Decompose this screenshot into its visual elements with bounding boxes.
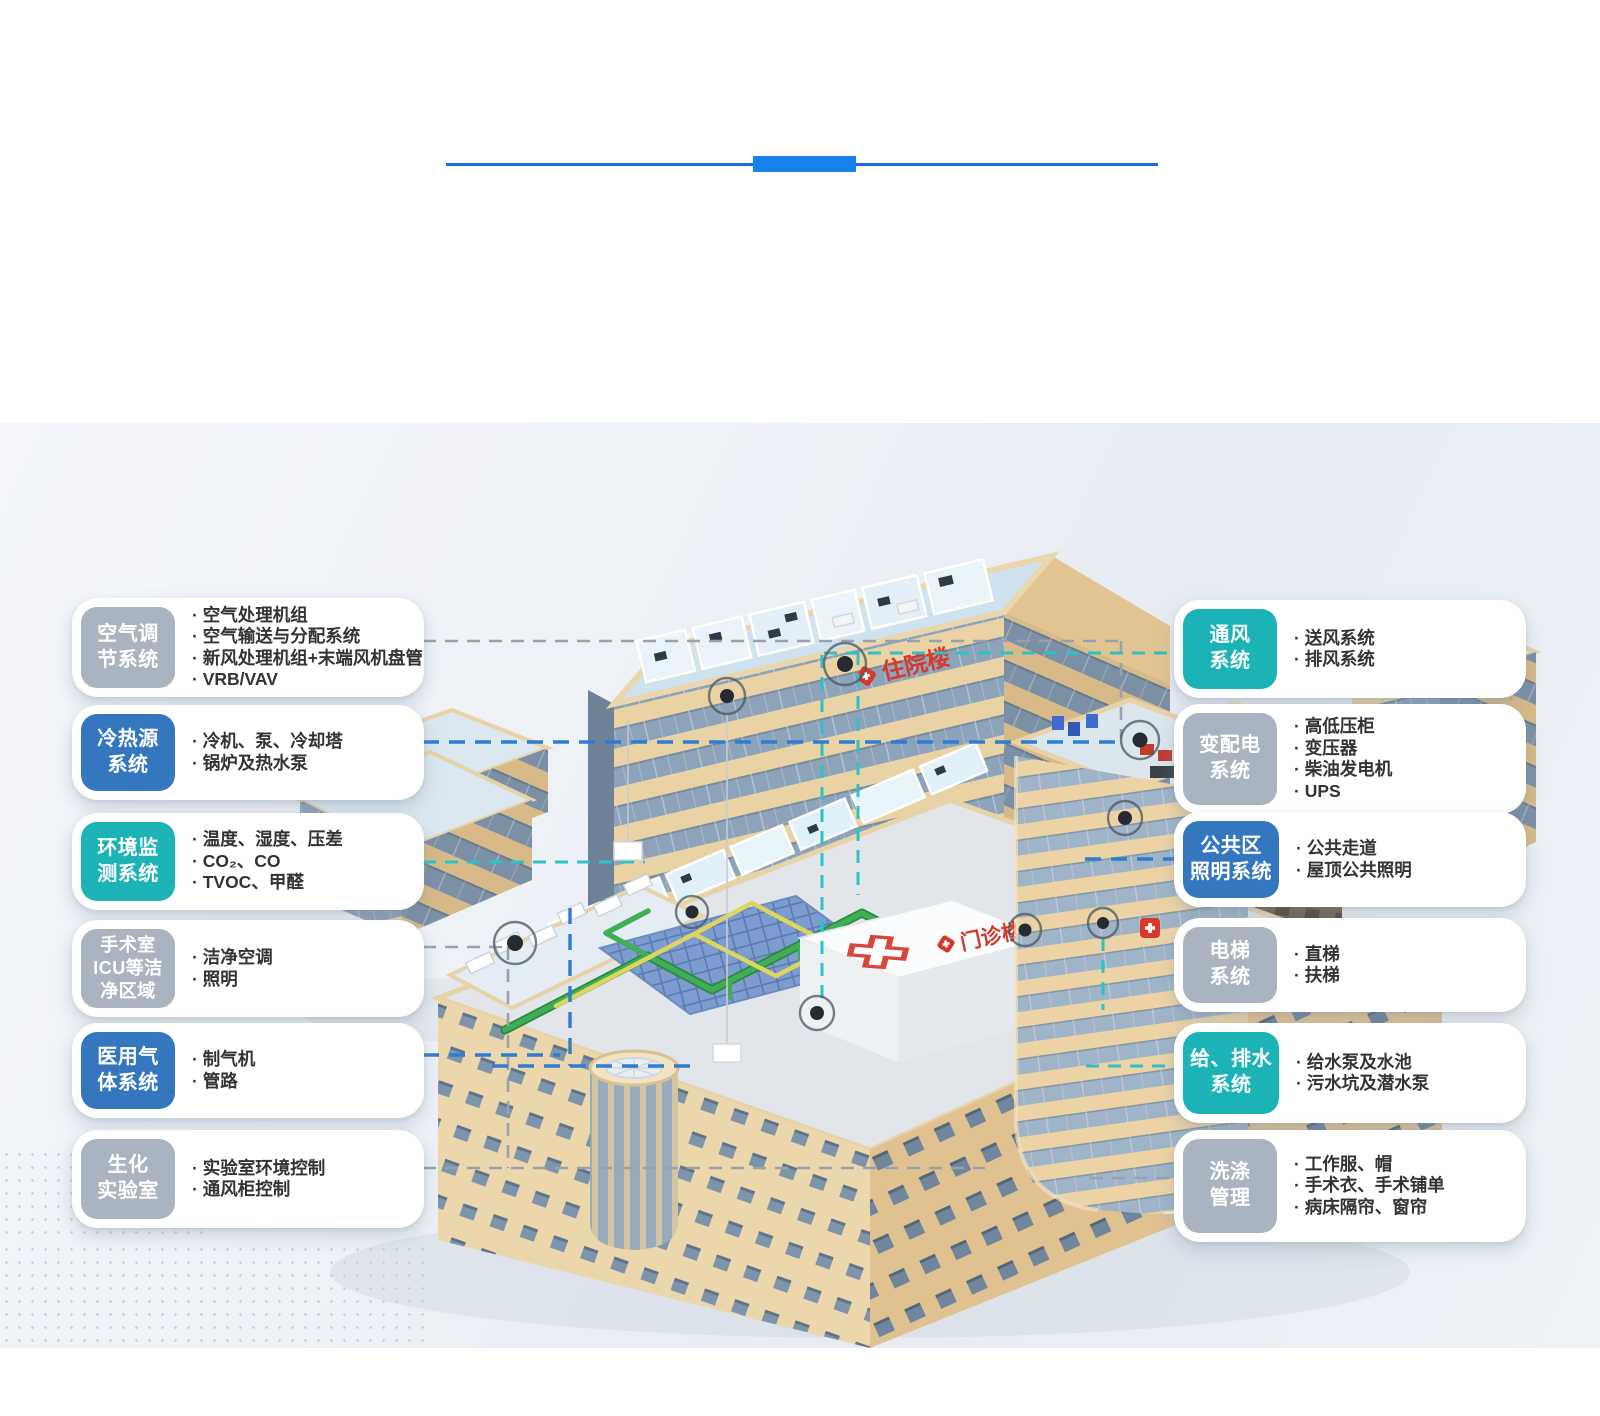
card-item: 排风系统 xyxy=(1294,649,1375,671)
card-ventilation: 通风 系统 送风系统 排风系统 xyxy=(1174,600,1526,698)
badge-line: 冷热源 xyxy=(97,727,159,753)
badge-line: 公共区 xyxy=(1200,834,1262,860)
card-item: 空气输送与分配系统 xyxy=(192,626,423,648)
card-items: 制气机 管路 xyxy=(175,1049,255,1092)
badge-line: 变配电 xyxy=(1199,733,1261,759)
card-item: TVOC、甲醛 xyxy=(192,872,343,894)
card-power-distribution: 变配电 系统 高低压柜 变压器 柴油发电机 UPS xyxy=(1174,704,1526,814)
card-item: 给水泵及水池 xyxy=(1296,1052,1429,1074)
badge-laundry-management: 洗涤 管理 xyxy=(1183,1139,1277,1233)
card-item: 新风处理机组+末端风机盘管 xyxy=(192,648,423,670)
card-item: 温度、湿度、压差 xyxy=(192,829,343,851)
card-item: VRB/VAV xyxy=(192,669,423,691)
badge-power-distribution: 变配电 系统 xyxy=(1183,713,1277,805)
badge-line: 洗涤 xyxy=(1210,1160,1251,1186)
card-item: 污水坑及潜水泵 xyxy=(1296,1073,1429,1095)
badge-elevator: 电梯 系统 xyxy=(1183,927,1277,1003)
card-item: 制气机 xyxy=(192,1049,255,1071)
card-item: 锅炉及热水泵 xyxy=(192,753,343,775)
card-items: 送风系统 排风系统 xyxy=(1277,628,1375,671)
card-environment-monitoring: 环境监 测系统 温度、湿度、压差 CO₂、CO TVOC、甲醛 xyxy=(72,813,424,910)
badge-line: 通风 xyxy=(1210,623,1251,649)
card-item: 洁净空调 xyxy=(192,947,273,969)
badge-line: 实验室 xyxy=(97,1179,159,1205)
card-item: 公共走道 xyxy=(1296,838,1412,860)
badge-line: ICU等洁 xyxy=(93,957,163,980)
card-item: 柴油发电机 xyxy=(1294,759,1392,781)
badge-line: 空气调 xyxy=(97,622,159,648)
card-items: 实验室环境控制 通风柜控制 xyxy=(175,1158,325,1201)
card-water-supply-drainage: 给、排水 系统 给水泵及水池 污水坑及潜水泵 xyxy=(1174,1023,1526,1123)
card-item: 送风系统 xyxy=(1294,628,1375,650)
card-air-conditioning: 空气调 节系统 空气处理机组 空气输送与分配系统 新风处理机组+末端风机盘管 V… xyxy=(72,598,424,697)
card-item: 屋顶公共照明 xyxy=(1296,860,1412,882)
badge-line: 系统 xyxy=(1210,965,1251,991)
badge-line: 系统 xyxy=(108,753,149,779)
card-elevator: 电梯 系统 直梯 扶梯 xyxy=(1174,918,1526,1012)
card-medical-gas: 医用气 体系统 制气机 管路 xyxy=(72,1023,424,1118)
card-item: UPS xyxy=(1294,781,1392,803)
card-item: 实验室环境控制 xyxy=(192,1158,325,1180)
cylinder-tower xyxy=(590,1051,678,1250)
card-item: 管路 xyxy=(192,1071,255,1093)
card-items: 给水泵及水池 污水坑及潜水泵 xyxy=(1279,1052,1429,1095)
card-item: 变压器 xyxy=(1294,738,1392,760)
card-items: 工作服、帽 手术衣、手术铺单 病床隔帘、窗帘 xyxy=(1277,1154,1445,1219)
badge-line: 净区域 xyxy=(100,980,156,1003)
badge-line: 手术室 xyxy=(100,934,156,957)
card-item: 扶梯 xyxy=(1294,965,1340,987)
badge-ventilation: 通风 系统 xyxy=(1183,609,1277,689)
page: 住院楼 xyxy=(0,0,1600,1416)
badge-line: 生化 xyxy=(108,1153,149,1179)
badge-line: 给、排水 xyxy=(1190,1047,1272,1073)
badge-water-supply-drainage: 给、排水 系统 xyxy=(1183,1032,1279,1114)
card-items: 洁净空调 照明 xyxy=(175,947,273,990)
badge-medical-gas: 医用气 体系统 xyxy=(81,1032,175,1109)
card-items: 冷机、泵、冷却塔 锅炉及热水泵 xyxy=(175,731,343,774)
card-items: 高低压柜 变压器 柴油发电机 UPS xyxy=(1277,716,1392,802)
badge-line: 环境监 xyxy=(97,836,159,862)
badge-heat-cool-source: 冷热源 系统 xyxy=(81,714,175,791)
card-item: 病床隔帘、窗帘 xyxy=(1294,1197,1445,1219)
card-items: 直梯 扶梯 xyxy=(1277,944,1340,987)
badge-line: 体系统 xyxy=(97,1071,159,1097)
badge-air-conditioning: 空气调 节系统 xyxy=(81,607,175,688)
badge-clean-areas: 手术室 ICU等洁 净区域 xyxy=(81,929,175,1008)
badge-line: 测系统 xyxy=(97,862,159,888)
badge-environment-monitoring: 环境监 测系统 xyxy=(81,822,175,901)
badge-line: 管理 xyxy=(1210,1186,1251,1212)
emergency-cross-sign xyxy=(1140,918,1160,938)
badge-line: 系统 xyxy=(1210,649,1251,675)
badge-line: 照明系统 xyxy=(1190,860,1272,886)
card-item: 直梯 xyxy=(1294,944,1340,966)
card-clean-areas: 手术室 ICU等洁 净区域 洁净空调 照明 xyxy=(72,920,424,1017)
card-item: CO₂、CO xyxy=(192,851,343,873)
card-laundry-management: 洗涤 管理 工作服、帽 手术衣、手术铺单 病床隔帘、窗帘 xyxy=(1174,1130,1526,1242)
badge-line: 电梯 xyxy=(1210,939,1251,965)
card-item: 手术衣、手术铺单 xyxy=(1294,1175,1445,1197)
badge-line: 系统 xyxy=(1211,1073,1252,1099)
badge-line: 节系统 xyxy=(97,648,159,674)
card-item: 照明 xyxy=(192,969,273,991)
card-items: 温度、湿度、压差 CO₂、CO TVOC、甲醛 xyxy=(175,829,343,894)
card-item: 高低压柜 xyxy=(1294,716,1392,738)
card-items: 公共走道 屋顶公共照明 xyxy=(1279,838,1412,881)
card-item: 通风柜控制 xyxy=(192,1179,325,1201)
card-item: 工作服、帽 xyxy=(1294,1154,1445,1176)
badge-line: 医用气 xyxy=(97,1045,159,1071)
card-items: 空气处理机组 空气输送与分配系统 新风处理机组+末端风机盘管 VRB/VAV xyxy=(175,605,423,691)
badge-line: 系统 xyxy=(1210,759,1251,785)
card-item: 冷机、泵、冷却塔 xyxy=(192,731,343,753)
card-biochem-lab: 生化 实验室 实验室环境控制 通风柜控制 xyxy=(72,1130,424,1228)
card-heat-cool-source: 冷热源 系统 冷机、泵、冷却塔 锅炉及热水泵 xyxy=(72,705,424,800)
badge-biochem-lab: 生化 实验室 xyxy=(81,1139,175,1219)
card-item: 空气处理机组 xyxy=(192,605,423,627)
card-public-lighting: 公共区 照明系统 公共走道 屋顶公共照明 xyxy=(1174,812,1526,907)
badge-public-lighting: 公共区 照明系统 xyxy=(1183,821,1279,898)
